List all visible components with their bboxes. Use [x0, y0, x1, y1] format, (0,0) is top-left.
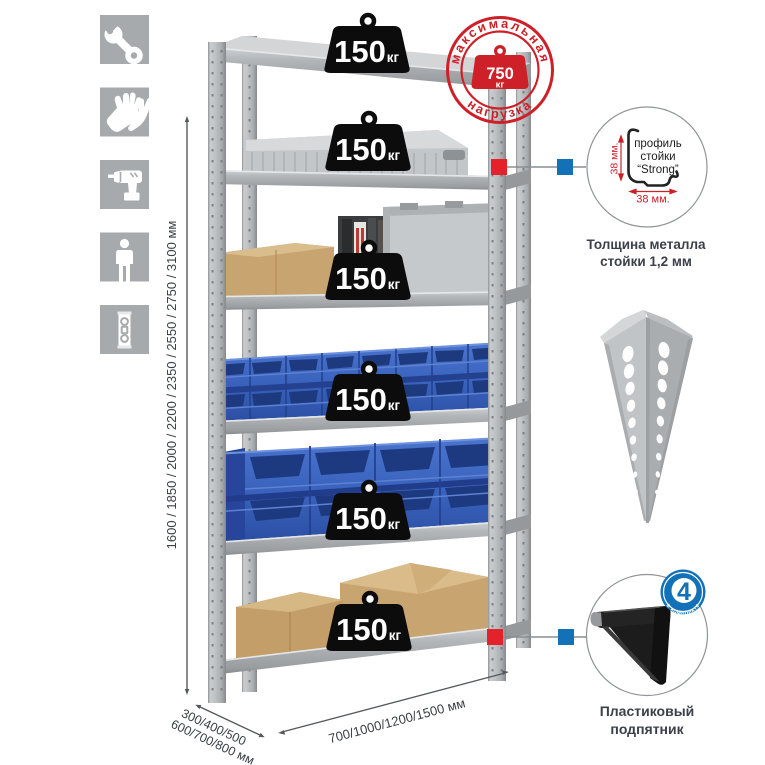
svg-text:150: 150: [336, 612, 388, 647]
svg-text:1600 / 1850 / 2000 / 2200 / 23: 1600 / 1850 / 2000 / 2200 / 2350 / 2550 …: [164, 221, 179, 550]
svg-text:стойки 1,2 мм: стойки 1,2 мм: [600, 254, 692, 269]
svg-text:кг: кг: [388, 398, 401, 413]
svg-text:профиль: профиль: [634, 138, 682, 150]
svg-text:150: 150: [334, 34, 386, 69]
svg-text:кг: кг: [389, 628, 402, 643]
svg-text:Пластиковый: Пластиковый: [600, 703, 695, 719]
svg-text:700/1000/1200/1500 мм: 700/1000/1200/1500 мм: [327, 695, 467, 746]
svg-text:стойки: стойки: [640, 151, 675, 163]
svg-text:150: 150: [335, 132, 387, 167]
svg-text:150: 150: [335, 261, 387, 296]
svg-text:кг: кг: [387, 50, 400, 65]
svg-text:Толщина металла: Толщина металла: [586, 237, 706, 252]
svg-text:150: 150: [335, 501, 387, 536]
svg-text:кг: кг: [496, 80, 505, 91]
svg-text:подпятник: подпятник: [610, 721, 684, 737]
svg-text:150: 150: [335, 382, 387, 417]
svg-text:38 мм.: 38 мм.: [609, 143, 621, 175]
svg-text:кг: кг: [388, 517, 401, 532]
svg-text:4: 4: [677, 578, 691, 606]
svg-text:кг: кг: [388, 277, 401, 292]
svg-text:38 мм.: 38 мм.: [636, 194, 669, 206]
svg-text:“Strong”: “Strong”: [637, 164, 679, 176]
svg-text:кг: кг: [388, 148, 401, 163]
